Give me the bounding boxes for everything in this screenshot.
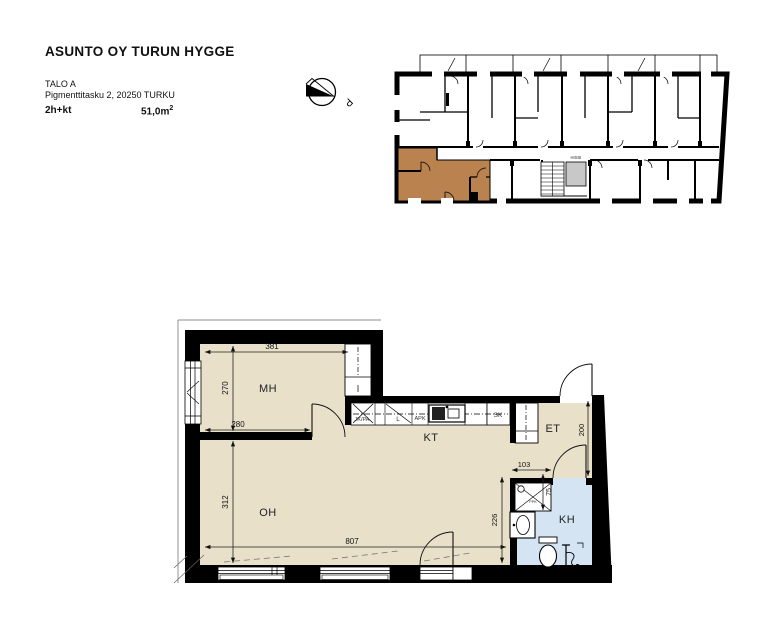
room-label-kt: KT [423, 432, 438, 444]
bathroom-sink-icon [510, 512, 535, 538]
fridge-label: JK/PA [355, 417, 370, 423]
area-label: 51,0m2 [141, 105, 173, 117]
elevator-label: HISSI [571, 155, 582, 160]
room-label-et: ET [545, 423, 560, 435]
balcony-door [453, 567, 472, 580]
stove-label: L [396, 416, 400, 423]
washer-reserve-box: PPK [515, 483, 551, 511]
balcony-strip [420, 55, 717, 72]
mh-closet [345, 344, 371, 396]
dim-nook-width: 103 [518, 460, 531, 469]
floorplan-sheet: ASUNTO OY TURUN HYGGE TALO A Pigmenttita… [0, 0, 778, 630]
apartment-type-label: 2h+kt [45, 105, 71, 116]
dim-oh-height: 312 [221, 495, 230, 509]
room-label-mh: MH [259, 383, 277, 395]
washer-label: PPK [529, 500, 537, 504]
cleaning-closet-label: SK [494, 412, 503, 419]
page-title: ASUNTO OY TURUN HYGGE [45, 44, 235, 59]
room-label-kh: KH [559, 514, 575, 526]
dim-oh-width: 807 [345, 537, 359, 546]
dim-mh-width: 381 [265, 342, 279, 351]
et-closet [515, 403, 538, 443]
address-label: Pigmenttitasku 2, 20250 TURKU [45, 90, 175, 101]
entrance-door-arc [560, 364, 592, 396]
north-letter: P [342, 96, 355, 109]
room-label-oh: OH [259, 507, 277, 519]
building-overview-plan: HISSI [388, 48, 733, 208]
north-arrow-icon: P [296, 66, 368, 124]
dim-mh-door: 280 [231, 420, 245, 429]
dim-nook-depth: 75 [546, 488, 553, 496]
mh-window [185, 361, 201, 424]
toilet-icon [539, 537, 557, 567]
dim-et-height: 200 [577, 424, 586, 437]
building-label: TALO A [45, 79, 76, 90]
dim-mh-height: 270 [221, 381, 230, 395]
main-floorplan: JK/PA L APK SK [170, 315, 625, 595]
living-room-windows [218, 567, 472, 580]
kitchen-counter: JK/PA L APK SK [351, 403, 510, 425]
stairs-icon [541, 162, 564, 196]
dishwasher-label: APK [414, 416, 425, 422]
kitchen-sink-icon [429, 405, 465, 422]
dim-kh-wall: 226 [490, 514, 499, 527]
